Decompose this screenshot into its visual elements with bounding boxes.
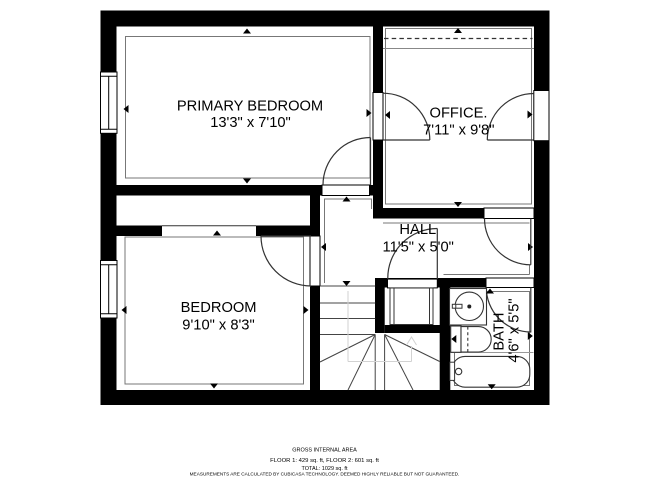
svg-text:HALL: HALL	[399, 222, 436, 238]
svg-text:11'5" x 5'0": 11'5" x 5'0"	[383, 240, 454, 256]
svg-text:MEASUREMENTS ARE CALCULATED BY: MEASUREMENTS ARE CALCULATED BY CUBICASA …	[190, 472, 460, 477]
svg-text:BEDROOM: BEDROOM	[181, 300, 257, 316]
svg-text:FLOOR 1: 429 sq. ft, FLOOR 2:: FLOOR 1: 429 sq. ft, FLOOR 2: 601 sq. ft	[270, 458, 379, 464]
svg-text:OFFICE.: OFFICE.	[430, 106, 488, 122]
svg-text:GROSS INTERNAL AREA: GROSS INTERNAL AREA	[292, 448, 357, 454]
svg-text:PRIMARY BEDROOM: PRIMARY BEDROOM	[177, 99, 323, 115]
svg-text:4'6" x 5'5": 4'6" x 5'5"	[507, 298, 523, 362]
svg-text:7'11" x 9'8": 7'11" x 9'8"	[423, 123, 494, 139]
svg-text:9'10" x 8'3": 9'10" x 8'3"	[182, 318, 254, 334]
svg-text:BATH: BATH	[492, 313, 508, 351]
svg-text:13'3" x 7'10": 13'3" x 7'10"	[210, 115, 291, 131]
